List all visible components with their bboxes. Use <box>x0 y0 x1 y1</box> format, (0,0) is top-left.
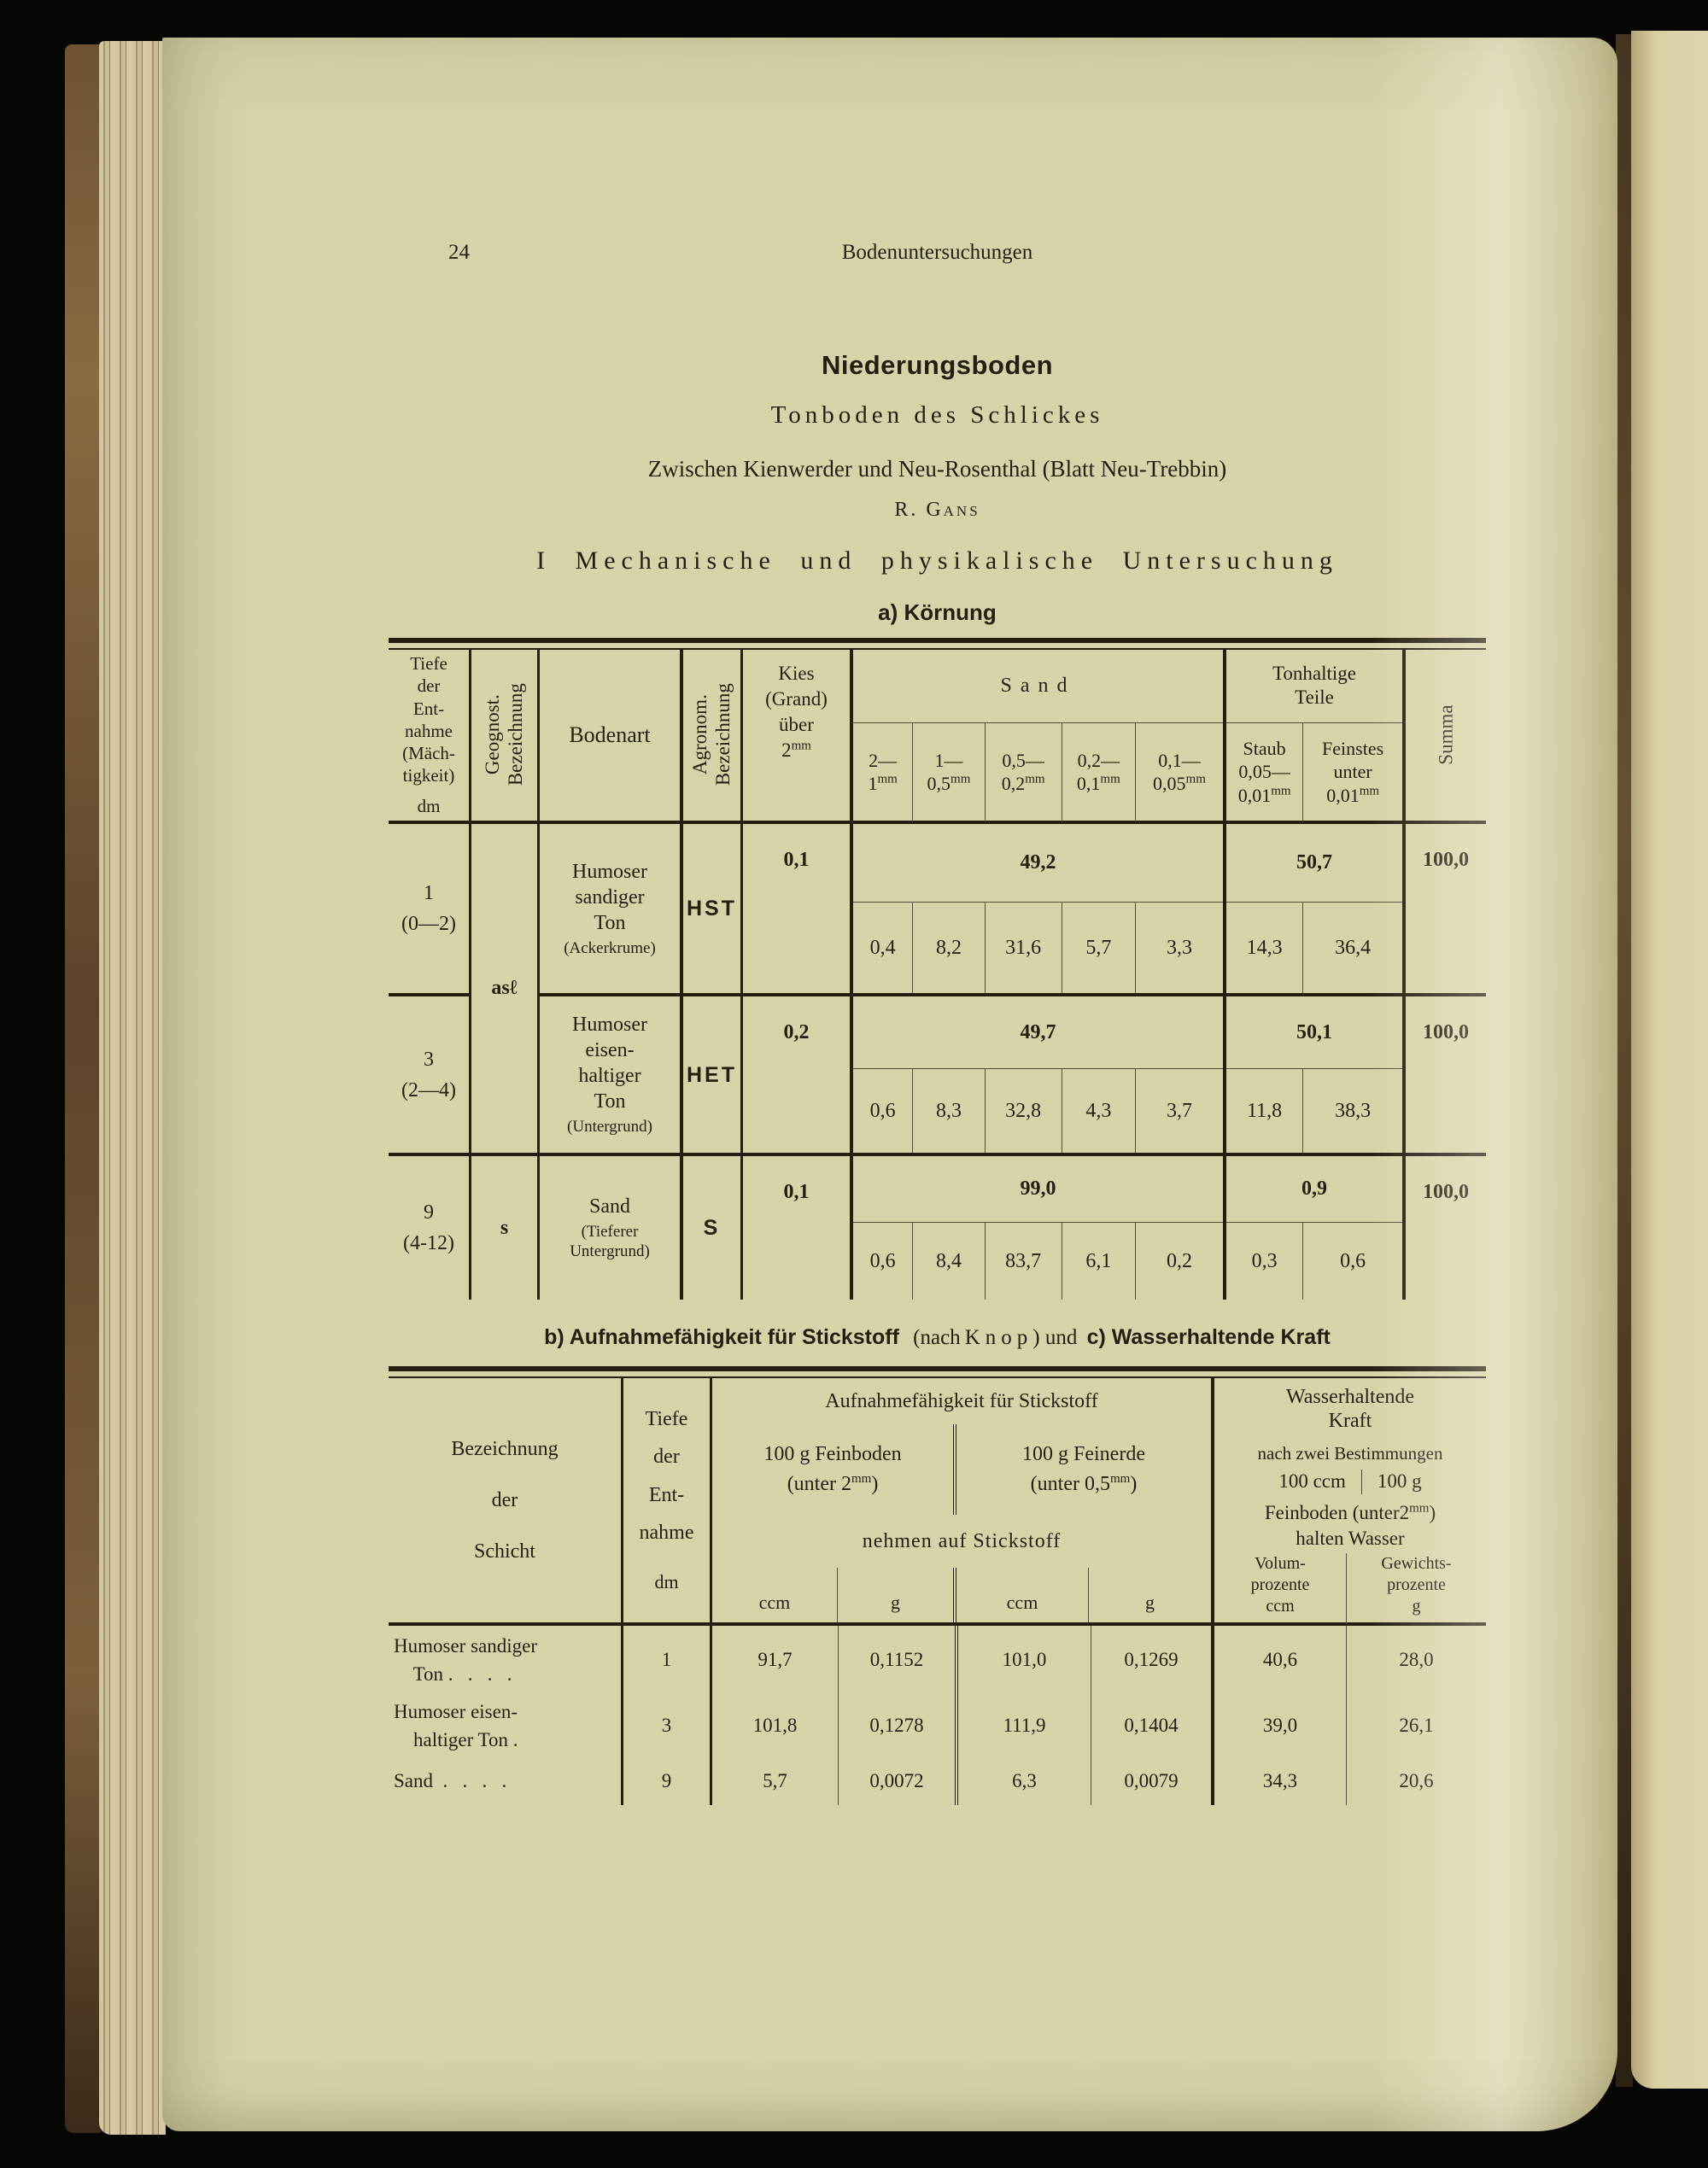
row1-sand-block: 49,2 0,4 8,2 31,6 5,7 3,3 <box>853 824 1226 993</box>
author-line: R. Gans <box>389 499 1486 522</box>
header-ton-group: Tonhaltige Teile Staub 0,05— 0,01mm Fein… <box>1226 649 1406 824</box>
row2-ton-total: 50,1 <box>1226 996 1402 1069</box>
header-feinstes-col: Feinstes unter 0,01mm <box>1303 723 1402 821</box>
ton-value: 38,3 <box>1303 1069 1402 1153</box>
row1-agronom: HST <box>683 824 743 993</box>
sand-value: 6,1 <box>1062 1223 1136 1300</box>
stickstoff-wasser-table: Bezeichnung der Schicht Tiefe der Ent- n… <box>389 1378 1486 1805</box>
row2-sand-total: 49,7 <box>853 996 1223 1069</box>
b-row2-fb-g: 0,1278 <box>839 1694 958 1757</box>
header-ton-subcolumns: Staub 0,05— 0,01mm Feinstes unter 0,01mm <box>1226 723 1402 821</box>
header-bodenart: Bodenart <box>540 649 683 824</box>
header-wasser-group: Wasserhaltende Kraft nach zwei Bestimmun… <box>1214 1378 1486 1626</box>
header-kies-lines: Kies (Grand) über <box>765 661 828 738</box>
ton-value: 14,3 <box>1226 903 1303 993</box>
b-row1-fe-g: 0,1269 <box>1091 1626 1214 1694</box>
header-tiefe-lines: Tiefe der Ent- nahme (Mäch- tigkeit) <box>402 652 455 787</box>
caption-b: b) Aufnahmefähigkeit für Stickstoff <box>544 1325 899 1349</box>
table-a-top-rule <box>389 638 1486 650</box>
row3-sand-total: 99,0 <box>853 1156 1223 1223</box>
header-feinboden2: Feinboden (unter2mm) halten Wasser <box>1214 1499 1486 1553</box>
sand-value: 83,7 <box>986 1223 1062 1300</box>
header-100g: 100 g <box>1361 1470 1422 1494</box>
header-agronom-label: Agronom. Bezeichnung <box>688 683 734 786</box>
b-row1-fb-ccm: 91,7 <box>712 1626 839 1694</box>
header-sand-group: Sand 2— 1mm 1— 0,5mm 0,5— 0,2mm <box>853 649 1226 824</box>
b-row3-name: Sand . . . . <box>389 1757 623 1805</box>
b-row2-fe-ccm: 111,9 <box>958 1694 1091 1757</box>
header-units-row: ccm g ccm g <box>712 1568 1211 1622</box>
row3-tiefe: 9 (4-12) <box>389 1153 471 1300</box>
row1-kies: 0,1 <box>743 824 853 993</box>
page-edge-stack <box>99 41 166 2135</box>
sand-value: 0,2 <box>1136 1223 1223 1300</box>
row3-sand-values: 0,6 8,4 83,7 6,1 0,2 <box>853 1223 1223 1300</box>
b-row3-fe-ccm: 6,3 <box>958 1757 1091 1805</box>
sand-value: 5,7 <box>1062 903 1136 993</box>
header-geognost: Geognost. Bezeichnung <box>471 649 540 824</box>
row1-summa: 100,0 <box>1406 824 1486 993</box>
header-sand-title: Sand <box>853 649 1223 723</box>
row2-summa: 100,0 <box>1406 993 1486 1153</box>
b-row1-fe-ccm: 101,0 <box>958 1626 1091 1694</box>
row3-agronom: S <box>683 1153 743 1300</box>
header-nach: nach zwei Bestimmungen <box>1214 1442 1486 1466</box>
sand-value: 4,3 <box>1062 1069 1136 1153</box>
b-row3-fb-ccm: 5,7 <box>712 1757 839 1805</box>
unit-ccm: ccm <box>712 1568 838 1622</box>
sand-value: 8,3 <box>913 1069 985 1153</box>
caption-mid2: ) und <box>1032 1326 1077 1349</box>
row1-sand-values: 0,4 8,2 31,6 5,7 3,3 <box>853 903 1223 993</box>
header-feinerde: 100 g Feinerde (unter 0,5mm) <box>956 1424 1211 1515</box>
page-title: Niederungsboden <box>389 350 1486 381</box>
sand-value: 0,6 <box>853 1223 913 1300</box>
page-gutter-shadow <box>1616 34 1633 2087</box>
header-bezeichnung: Bezeichnung der Schicht <box>389 1378 623 1626</box>
header-tiefe-b: Tiefe der Ent- nahme dm <box>623 1378 712 1626</box>
b-row2-fb-ccm: 101,8 <box>712 1694 839 1757</box>
b-row2-gewichts: 26,1 <box>1347 1694 1486 1757</box>
row1-ton-block: 50,7 14,3 36,4 <box>1226 824 1406 993</box>
row2-ton-values: 11,8 38,3 <box>1226 1069 1402 1153</box>
row3-bodenart: Sand (Tieferer Untergrund) <box>540 1153 683 1300</box>
row3-kies: 0,1 <box>743 1153 853 1300</box>
header-sand-col: 1— 0,5mm <box>913 723 985 821</box>
header-sand-subcolumns: 2— 1mm 1— 0,5mm 0,5— 0,2mm 0,2— <box>853 723 1223 821</box>
row2-sand-block: 49,7 0,6 8,3 32,8 4,3 3,7 <box>853 993 1226 1153</box>
header-sand-col: 0,2— 0,1mm <box>1062 723 1136 821</box>
book-spine <box>65 44 101 2133</box>
b-row3-gewichts: 20,6 <box>1347 1757 1486 1805</box>
header-staub-col: Staub 0,05— 0,01mm <box>1226 723 1303 821</box>
header-stickstoff-group: Aufnahmefähigkeit für Stickstoff 100 g F… <box>712 1378 1214 1626</box>
row2-bodenart: Humoser eisen- haltiger Ton (Untergrund) <box>540 993 683 1153</box>
header-summa-label: Summa <box>1434 704 1457 764</box>
koernung-table: Tiefe der Ent- nahme (Mäch- tigkeit) dm … <box>389 649 1486 1300</box>
sand-value: 32,8 <box>986 1069 1062 1153</box>
location-line: Zwischen Kienwerder und Neu-Rosenthal (B… <box>389 456 1486 482</box>
b-row2-fe-g: 0,1404 <box>1091 1694 1214 1757</box>
unit-ccm: ccm <box>956 1568 1089 1622</box>
b-row3-tiefe: 9 <box>623 1757 712 1805</box>
ton-value: 11,8 <box>1226 1069 1303 1153</box>
sand-value: 3,3 <box>1136 903 1223 993</box>
header-ton-title: Tonhaltige Teile <box>1226 649 1402 723</box>
header-tiefe: Tiefe der Ent- nahme (Mäch- tigkeit) dm <box>389 649 471 824</box>
header-feinboden: 100 g Feinboden (unter 2mm) <box>712 1424 956 1515</box>
header-summa: Summa <box>1406 649 1486 824</box>
unit-g: g <box>838 1568 956 1622</box>
page-subtitle: Tonboden des Schlickes <box>389 401 1486 430</box>
row2-sand-values: 0,6 8,3 32,8 4,3 3,7 <box>853 1069 1223 1153</box>
caption-knop: Knop <box>965 1326 1033 1349</box>
header-geognost-label: Geognost. Bezeichnung <box>481 683 527 786</box>
row3-summa: 100,0 <box>1406 1153 1486 1300</box>
b-row2-tiefe: 3 <box>623 1694 712 1757</box>
row2-tiefe: 3 (2—4) <box>389 993 471 1153</box>
row1-tiefe: 1 (0—2) <box>389 824 471 993</box>
b-row2-volum: 39,0 <box>1214 1694 1347 1757</box>
header-100-row: 100 ccm 100 g <box>1214 1466 1486 1499</box>
row1-ton-total: 50,7 <box>1226 824 1402 903</box>
header-100ccm: 100 ccm <box>1278 1470 1346 1494</box>
b-row1-tiefe: 1 <box>623 1626 712 1694</box>
row2-kies: 0,2 <box>743 993 853 1153</box>
ton-value: 36,4 <box>1303 903 1402 993</box>
b-row3-fb-g: 0,0072 <box>839 1757 958 1805</box>
running-title: Bodenuntersuchungen <box>389 241 1486 265</box>
row2-agronom: HET <box>683 993 743 1153</box>
header-stickstoff-title: Aufnahmefähigkeit für Stickstoff <box>712 1378 1211 1424</box>
ton-value: 0,3 <box>1226 1223 1303 1300</box>
b-row1-fb-g: 0,1152 <box>839 1626 958 1694</box>
header-kies: Kies (Grand) über 2mm <box>743 649 853 824</box>
subsection-a-heading: a) Körnung <box>389 599 1486 626</box>
row3-ton-block: 0,9 0,3 0,6 <box>1226 1153 1406 1300</box>
header-feinboden-feinerde: 100 g Feinboden (unter 2mm) 100 g Feiner… <box>712 1424 1211 1515</box>
row1-sand-total: 49,2 <box>853 824 1223 903</box>
header-sand-col: 2— 1mm <box>853 723 913 821</box>
row1-ton-values: 14,3 36,4 <box>1226 903 1402 993</box>
sand-value: 0,4 <box>853 903 913 993</box>
header-sand-col: 0,1— 0,05mm <box>1136 723 1223 821</box>
b-row1-name: Humoser sandiger Ton . . . . <box>389 1626 623 1694</box>
b-row1-gewichts: 28,0 <box>1347 1626 1486 1694</box>
header-gewichtsprozente: Gewichts- prozente g <box>1347 1553 1486 1624</box>
header-volumprozente: Volum- prozente ccm <box>1214 1553 1347 1624</box>
sand-value: 0,6 <box>853 1069 913 1153</box>
subsection-bc-heading: b) Aufnahmefähigkeit für Stickstoff (nac… <box>389 1325 1486 1350</box>
b-row3-volum: 34,3 <box>1214 1757 1347 1805</box>
running-header: 24 Bodenuntersuchungen <box>389 241 1486 275</box>
b-row2-name: Humoser eisen- haltiger Ton . <box>389 1694 623 1757</box>
b-row1-volum: 40,6 <box>1214 1626 1347 1694</box>
row3-sand-block: 99,0 0,6 8,4 83,7 6,1 0,2 <box>853 1153 1226 1300</box>
book-page: 24 Bodenuntersuchungen Niederungsboden T… <box>162 38 1617 2131</box>
header-tiefe-unit: dm <box>418 795 441 817</box>
sand-value: 31,6 <box>986 903 1062 993</box>
ton-value: 0,6 <box>1303 1223 1402 1300</box>
row3-ton-total: 0,9 <box>1226 1156 1402 1223</box>
row3-geognost: s <box>471 1153 540 1300</box>
sand-value: 8,4 <box>913 1223 985 1300</box>
facing-page-edge <box>1631 31 1708 2089</box>
sand-value: 3,7 <box>1136 1069 1223 1153</box>
row2-ton-block: 50,1 11,8 38,3 <box>1226 993 1406 1153</box>
section-heading: I Mechanische und physikalische Untersuc… <box>389 546 1486 576</box>
header-prozente-row: Volum- prozente ccm Gewichts- prozente g <box>1214 1553 1486 1624</box>
b-row3-fe-g: 0,0079 <box>1091 1757 1214 1805</box>
row3-ton-values: 0,3 0,6 <box>1226 1223 1402 1300</box>
unit-g: g <box>1089 1568 1211 1622</box>
caption-mid1: (nach <box>913 1326 961 1349</box>
sand-value: 8,2 <box>913 903 985 993</box>
row1-2-geognost: asℓ <box>471 824 540 1153</box>
header-nehmen: nehmen auf Stickstoff <box>712 1515 1211 1568</box>
header-kies-size: 2mm <box>781 738 811 763</box>
header-sand-col: 0,5— 0,2mm <box>986 723 1062 821</box>
row1-bodenart: Humoser sandiger Ton (Ackerkrume) <box>540 824 683 993</box>
caption-c: c) Wasserhaltende Kraft <box>1087 1325 1331 1349</box>
header-agronom: Agronom. Bezeichnung <box>683 649 743 824</box>
header-wasser-title: Wasserhaltende Kraft <box>1214 1377 1486 1442</box>
